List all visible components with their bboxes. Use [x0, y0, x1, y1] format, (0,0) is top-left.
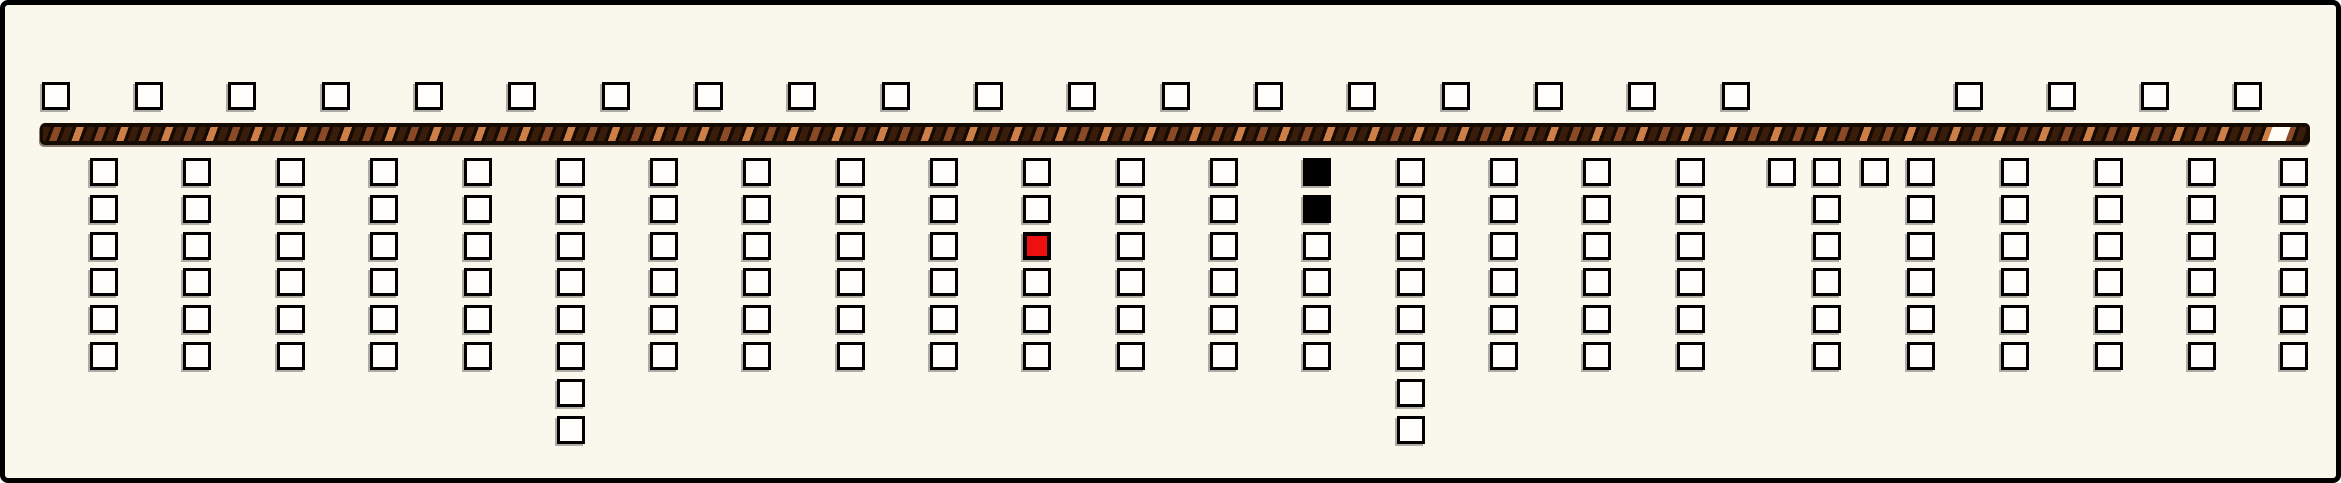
grid-square[interactable] [1397, 342, 1425, 370]
grid-square[interactable] [277, 342, 305, 370]
grid-square[interactable] [183, 268, 211, 296]
grid-square[interactable] [464, 305, 492, 333]
grid-square[interactable] [1907, 305, 1935, 333]
grid-square[interactable] [743, 342, 771, 370]
grid-square[interactable] [90, 158, 118, 186]
grid-square[interactable] [370, 158, 398, 186]
grid-square[interactable] [2188, 268, 2216, 296]
hatched-bar [40, 123, 2310, 145]
top-square[interactable] [508, 82, 536, 110]
grid-square[interactable] [1490, 268, 1518, 296]
grid-square[interactable] [370, 232, 398, 260]
grid-square[interactable] [930, 305, 958, 333]
grid-square[interactable] [2280, 305, 2308, 333]
hatched-bar-stripes [43, 127, 2306, 141]
grid-square[interactable] [557, 268, 585, 296]
grid-square[interactable] [1023, 158, 1051, 186]
top-square[interactable] [1348, 82, 1376, 110]
grid-square[interactable] [1490, 342, 1518, 370]
grid-square[interactable] [464, 268, 492, 296]
grid-square[interactable] [464, 158, 492, 186]
grid-square[interactable] [1907, 232, 1935, 260]
top-square[interactable] [2141, 82, 2169, 110]
top-square[interactable] [2048, 82, 2076, 110]
grid-square[interactable] [1813, 268, 1841, 296]
grid-square[interactable] [90, 195, 118, 223]
top-square[interactable] [695, 82, 723, 110]
grid-square[interactable] [370, 342, 398, 370]
grid-square[interactable] [2095, 268, 2123, 296]
grid-square[interactable] [1583, 342, 1611, 370]
grid-square[interactable] [2001, 158, 2029, 186]
grid-square[interactable] [1677, 158, 1705, 186]
grid-square[interactable] [1677, 305, 1705, 333]
grid-square[interactable] [1397, 268, 1425, 296]
grid-square[interactable] [2280, 342, 2308, 370]
grid-square[interactable] [1397, 416, 1425, 444]
grid-square[interactable] [2001, 268, 2029, 296]
grid-square[interactable] [930, 268, 958, 296]
grid-square[interactable] [930, 232, 958, 260]
grid-square[interactable] [1023, 342, 1051, 370]
grid-square[interactable] [1583, 158, 1611, 186]
grid-square[interactable] [837, 268, 865, 296]
grid-square[interactable] [1397, 158, 1425, 186]
top-square[interactable] [882, 82, 910, 110]
grid-square[interactable] [557, 158, 585, 186]
top-square[interactable] [1068, 82, 1096, 110]
grid-square[interactable] [2001, 305, 2029, 333]
grid-square[interactable] [1907, 342, 1935, 370]
grid-square[interactable] [930, 342, 958, 370]
grid-square[interactable] [183, 232, 211, 260]
grid-square[interactable] [370, 195, 398, 223]
grid-square[interactable] [2001, 195, 2029, 223]
grid-square[interactable] [1117, 195, 1145, 223]
grid-square[interactable] [277, 158, 305, 186]
grid-square[interactable] [1117, 158, 1145, 186]
grid-square[interactable] [557, 305, 585, 333]
grid-square[interactable] [277, 195, 305, 223]
grid-square[interactable] [1210, 342, 1238, 370]
grid-square[interactable] [1583, 268, 1611, 296]
grid-square[interactable] [370, 268, 398, 296]
grid-square[interactable] [1813, 232, 1841, 260]
grid-square[interactable] [743, 305, 771, 333]
grid-square[interactable] [1677, 195, 1705, 223]
grid-square[interactable] [1768, 158, 1796, 186]
grid-square[interactable] [1303, 268, 1331, 296]
grid-square[interactable] [930, 158, 958, 186]
grid-square[interactable] [2188, 232, 2216, 260]
grid-square[interactable] [1210, 195, 1238, 223]
grid-square[interactable] [2188, 195, 2216, 223]
grid-square[interactable] [1397, 305, 1425, 333]
grid-square[interactable] [90, 305, 118, 333]
grid-square[interactable] [837, 232, 865, 260]
grid-square[interactable] [2280, 195, 2308, 223]
grid-square[interactable] [557, 342, 585, 370]
grid-square[interactable] [1490, 305, 1518, 333]
grid-square[interactable] [1117, 342, 1145, 370]
grid-square[interactable] [183, 158, 211, 186]
top-square[interactable] [788, 82, 816, 110]
top-square[interactable] [1955, 82, 1983, 110]
grid-square[interactable] [650, 158, 678, 186]
grid-square[interactable] [557, 416, 585, 444]
grid-square[interactable] [1861, 158, 1889, 186]
grid-square[interactable] [650, 305, 678, 333]
grid-square[interactable] [1117, 268, 1145, 296]
grid-square[interactable] [277, 268, 305, 296]
grid-square[interactable] [183, 342, 211, 370]
grid-square[interactable] [557, 195, 585, 223]
top-square[interactable] [1722, 82, 1750, 110]
top-square[interactable] [322, 82, 350, 110]
grid-square[interactable] [650, 342, 678, 370]
grid-square[interactable] [1583, 305, 1611, 333]
grid-square[interactable] [90, 232, 118, 260]
top-square[interactable] [135, 82, 163, 110]
grid-square[interactable] [1490, 232, 1518, 260]
grid-square[interactable] [743, 232, 771, 260]
grid-square[interactable] [2188, 158, 2216, 186]
grid-square[interactable] [1490, 195, 1518, 223]
grid-square[interactable] [1583, 195, 1611, 223]
grid-square[interactable] [90, 268, 118, 296]
grid-square[interactable] [650, 195, 678, 223]
grid-square[interactable] [1210, 158, 1238, 186]
grid-square[interactable] [1907, 268, 1935, 296]
grid-square[interactable] [1490, 158, 1518, 186]
grid-square[interactable] [930, 195, 958, 223]
grid-square[interactable] [1023, 268, 1051, 296]
grid-square[interactable] [183, 195, 211, 223]
grid-square[interactable] [2095, 342, 2123, 370]
grid-square-black[interactable] [1303, 158, 1331, 186]
grid-square[interactable] [1813, 342, 1841, 370]
grid-square[interactable] [837, 195, 865, 223]
grid-square[interactable] [1210, 268, 1238, 296]
grid-square[interactable] [1907, 158, 1935, 186]
grid-square[interactable] [1907, 195, 1935, 223]
top-square[interactable] [415, 82, 443, 110]
grid-square[interactable] [464, 342, 492, 370]
grid-square[interactable] [1677, 342, 1705, 370]
grid-square-black[interactable] [1303, 195, 1331, 223]
grid-square[interactable] [464, 232, 492, 260]
grid-square[interactable] [2188, 342, 2216, 370]
grid-square[interactable] [1677, 232, 1705, 260]
grid-square[interactable] [370, 305, 398, 333]
grid-square[interactable] [650, 232, 678, 260]
grid-square[interactable] [1813, 305, 1841, 333]
grid-square[interactable] [277, 305, 305, 333]
grid-square[interactable] [277, 232, 305, 260]
grid-square[interactable] [1210, 232, 1238, 260]
top-square[interactable] [228, 82, 256, 110]
grid-square[interactable] [743, 268, 771, 296]
grid-square[interactable] [1023, 305, 1051, 333]
grid-square[interactable] [1397, 379, 1425, 407]
grid-square[interactable] [1023, 195, 1051, 223]
grid-square[interactable] [1813, 195, 1841, 223]
grid-square[interactable] [464, 195, 492, 223]
grid-square[interactable] [1303, 342, 1331, 370]
top-square[interactable] [1628, 82, 1656, 110]
grid-square-red[interactable] [1023, 232, 1051, 260]
grid-square[interactable] [2095, 232, 2123, 260]
grid-square[interactable] [743, 158, 771, 186]
grid-square[interactable] [1303, 232, 1331, 260]
grid-square[interactable] [1677, 268, 1705, 296]
grid-square[interactable] [837, 342, 865, 370]
grid-square[interactable] [743, 195, 771, 223]
grid-square[interactable] [2188, 305, 2216, 333]
grid-square[interactable] [2095, 305, 2123, 333]
top-square[interactable] [1162, 82, 1190, 110]
top-square[interactable] [1255, 82, 1283, 110]
grid-square[interactable] [1397, 232, 1425, 260]
grid-square[interactable] [837, 305, 865, 333]
grid-square[interactable] [1210, 305, 1238, 333]
grid-square[interactable] [557, 232, 585, 260]
top-square[interactable] [42, 82, 70, 110]
grid-square[interactable] [1583, 232, 1611, 260]
top-square[interactable] [602, 82, 630, 110]
grid-square[interactable] [650, 268, 678, 296]
grid-square[interactable] [1813, 158, 1841, 186]
grid-square[interactable] [2001, 342, 2029, 370]
grid-square[interactable] [1397, 195, 1425, 223]
grid-square[interactable] [90, 342, 118, 370]
top-square[interactable] [1442, 82, 1470, 110]
grid-square[interactable] [2095, 158, 2123, 186]
grid-square[interactable] [2280, 268, 2308, 296]
grid-square[interactable] [1117, 232, 1145, 260]
grid-square[interactable] [2095, 195, 2123, 223]
top-square[interactable] [975, 82, 1003, 110]
grid-square[interactable] [2001, 232, 2029, 260]
top-square[interactable] [2234, 82, 2262, 110]
grid-square[interactable] [1117, 305, 1145, 333]
grid-square[interactable] [557, 379, 585, 407]
diagram-frame [0, 0, 2341, 483]
grid-square[interactable] [2280, 232, 2308, 260]
grid-square[interactable] [837, 158, 865, 186]
grid-square[interactable] [2280, 158, 2308, 186]
top-square[interactable] [1535, 82, 1563, 110]
grid-square[interactable] [1303, 305, 1331, 333]
grid-square[interactable] [183, 305, 211, 333]
